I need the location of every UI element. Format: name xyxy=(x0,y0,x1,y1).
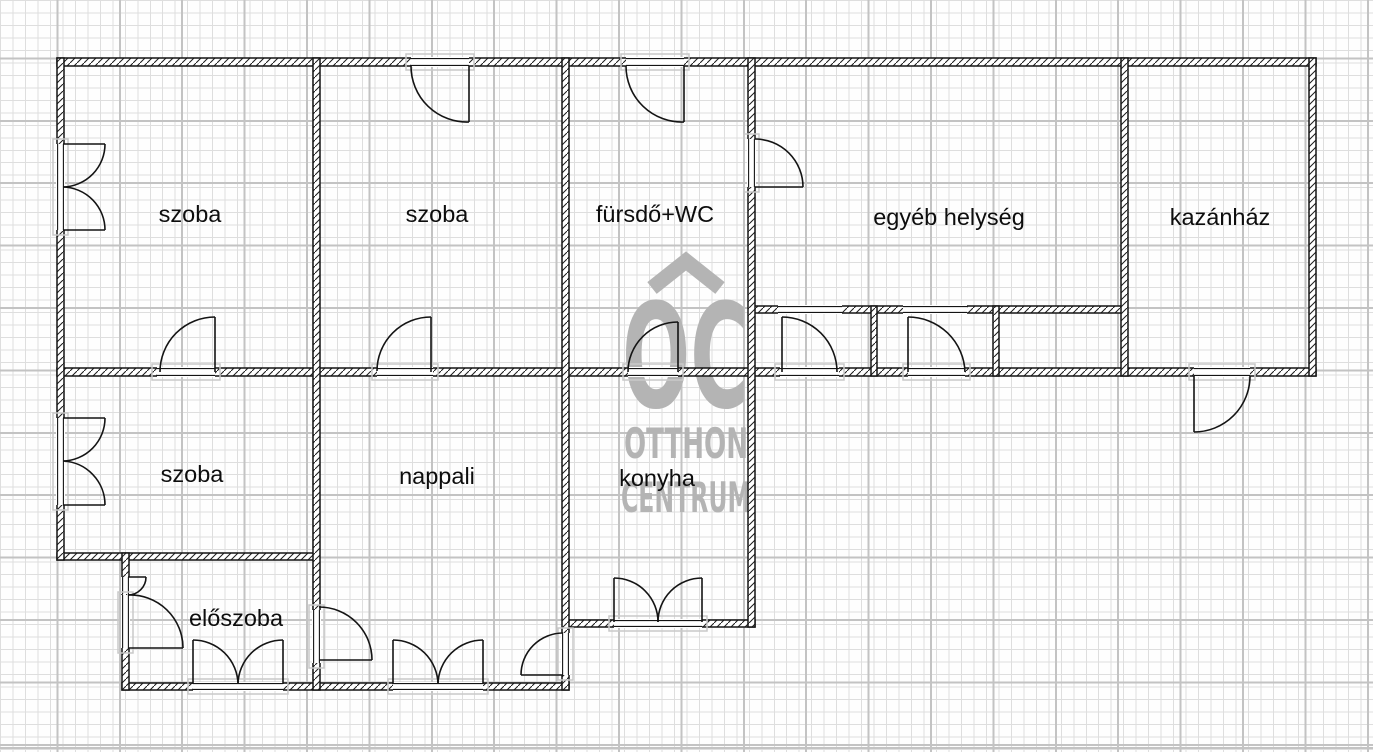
door-nappali-exterior xyxy=(521,633,563,675)
wall-szoba3-bottom xyxy=(57,553,319,560)
wall-divider-szoba2-furdo xyxy=(562,58,569,690)
floor-plan-canvas: OC OTTHON CENTRUM xyxy=(0,0,1373,752)
opening-furdo-egyeb-door xyxy=(744,134,759,192)
door-eloszoba-entry xyxy=(128,595,183,648)
opening-cell-a-door xyxy=(775,364,844,380)
opening-nappali-exterior-door xyxy=(558,628,573,680)
floor-plan-drawing: OC OTTHON CENTRUM xyxy=(0,0,1373,752)
window-szoba1-double-casement xyxy=(63,144,105,230)
door-eloszoba-french xyxy=(193,640,283,684)
door-eloszoba-nappali xyxy=(319,607,372,660)
room-label-furdo-wc: fürsdő+WC xyxy=(596,201,714,227)
wall-corridor-divider-2 xyxy=(993,306,999,376)
opening-cell-b-door xyxy=(903,364,970,380)
door-kazanhaz-exterior xyxy=(1194,376,1250,432)
room-label-szoba-bottom-left: szoba xyxy=(161,461,225,487)
room-label-szoba-top-left: szoba xyxy=(159,201,223,227)
opening-szoba2-top-door xyxy=(406,54,474,70)
door-szoba2-top xyxy=(411,66,469,122)
door-nappali-french xyxy=(393,640,483,684)
room-label-konyha: konyha xyxy=(619,465,696,491)
wall-right-exterior xyxy=(1309,58,1316,376)
opening-cell-a-top xyxy=(778,305,842,314)
opening-szoba1-door xyxy=(152,364,220,380)
watermark-line1: OTTHON xyxy=(624,419,748,468)
room-label-eloszoba: előszoba xyxy=(189,605,284,631)
room-label-nappali: nappali xyxy=(399,463,475,489)
room-label-egyeb-helyseg: egyéb helység xyxy=(873,204,1025,230)
opening-furdo-top-door xyxy=(621,54,689,70)
opening-szoba2-door xyxy=(372,364,438,380)
wall-corridor-divider-1 xyxy=(871,306,877,376)
wall-south-exterior xyxy=(122,683,569,690)
room-label-szoba-top-middle: szoba xyxy=(406,201,470,227)
wall-divider-szoba1-szoba2 xyxy=(313,58,320,690)
opening-cell-b-top xyxy=(903,305,967,314)
window-szoba3-double-casement xyxy=(63,418,105,505)
door-furdo-egyeb xyxy=(755,139,803,187)
opening-eloszoba-entry-door xyxy=(118,592,133,653)
opening-kazanhaz-door xyxy=(1189,364,1255,380)
room-label-kazanhaz: kazánház xyxy=(1170,204,1271,230)
watermark-logo: OC xyxy=(622,273,749,442)
walls xyxy=(57,58,1316,690)
wall-divider-egyeb-kazanhaz xyxy=(1121,58,1128,376)
door-furdo-top xyxy=(626,66,684,122)
opening-eloszoba-nappali-door xyxy=(309,605,324,668)
